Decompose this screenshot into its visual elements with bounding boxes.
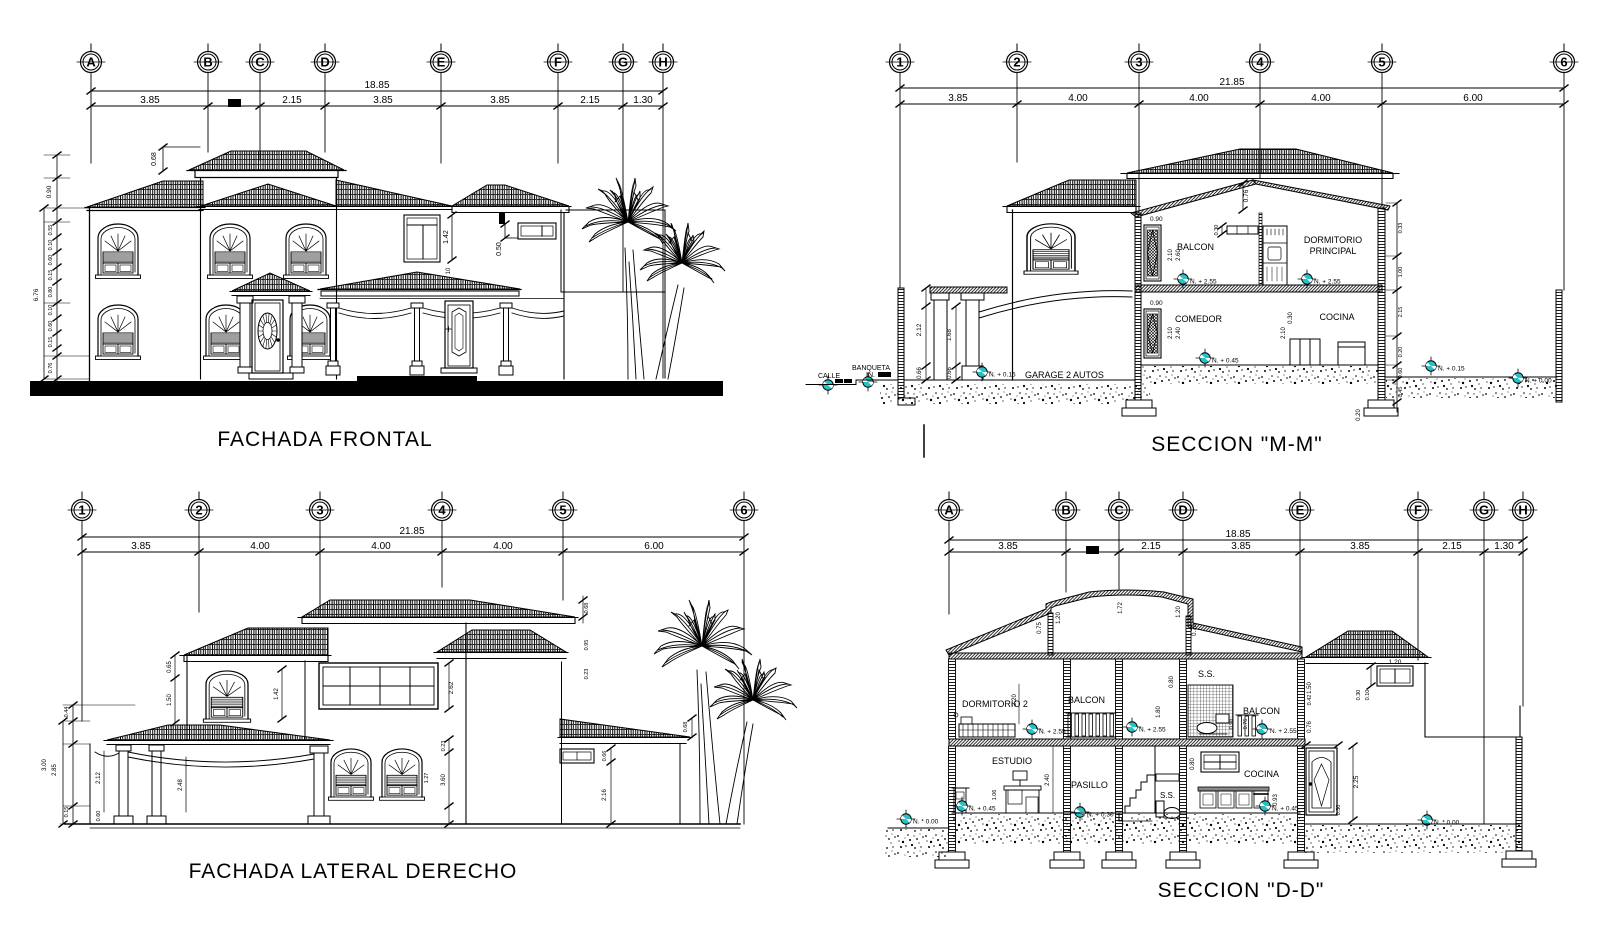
svg-text:0.68: 0.68 (584, 603, 590, 614)
svg-text:3.85: 3.85 (998, 541, 1018, 552)
svg-text:D: D (1178, 503, 1187, 518)
svg-text:N. + 0.45: N. + 0.45 (1272, 806, 1299, 813)
svg-text:B: B (203, 55, 212, 70)
svg-text:1.80: 1.80 (1156, 706, 1162, 718)
svg-text:N. + 0.45: N. + 0.45 (969, 806, 996, 813)
svg-text:0.95: 0.95 (584, 640, 590, 651)
svg-text:1.00: 1.00 (1398, 267, 1404, 278)
svg-text:2.10: 2.10 (1168, 327, 1174, 339)
svg-text:COCINA: COCINA (1244, 769, 1279, 779)
svg-text:4.00: 4.00 (371, 541, 391, 552)
svg-text:F: F (1414, 503, 1422, 518)
svg-text:3.85: 3.85 (1231, 541, 1251, 552)
svg-text:C: C (255, 55, 265, 70)
svg-text:0.15: 0.15 (48, 337, 54, 348)
svg-text:1: 1 (78, 503, 85, 518)
svg-text:N. + 2.55: N. + 2.55 (1139, 727, 1166, 734)
svg-text:N. + 0.00: N. + 0.00 (1525, 378, 1552, 385)
svg-text:0.80: 0.80 (1169, 676, 1175, 688)
svg-text:1.20: 1.20 (1056, 612, 1062, 624)
svg-text:1.20: 1.20 (1389, 659, 1402, 666)
svg-text:BANQUETA: BANQUETA (852, 365, 890, 372)
svg-text:0.65: 0.65 (167, 661, 173, 673)
svg-text:0.90: 0.90 (1150, 300, 1163, 307)
svg-text:2.25: 2.25 (1353, 775, 1360, 788)
svg-text:3.00: 3.00 (42, 759, 48, 771)
svg-text:F: F (554, 55, 562, 70)
svg-text:0.90: 0.90 (1150, 216, 1163, 223)
svg-text:10: 10 (446, 267, 452, 274)
svg-text:0.30: 0.30 (1356, 690, 1362, 701)
svg-text:2.12: 2.12 (916, 323, 923, 336)
svg-text:0.42: 0.42 (1307, 695, 1313, 706)
svg-text:N. + 2.55: N. + 2.55 (1314, 279, 1341, 286)
svg-text:3.85: 3.85 (131, 541, 151, 552)
svg-text:1.72: 1.72 (1118, 602, 1124, 614)
svg-text:A: A (944, 503, 954, 518)
svg-text:H: H (658, 55, 667, 70)
svg-text:6.00: 6.00 (644, 541, 664, 552)
svg-text:BALCON: BALCON (1068, 695, 1105, 705)
svg-text:0.75: 0.75 (1037, 622, 1043, 634)
svg-text:N. + 2.55: N. + 2.55 (1039, 729, 1066, 736)
svg-text:PASILLO: PASILLO (1071, 780, 1108, 790)
svg-text:DORMITORIO: DORMITORIO (1304, 235, 1362, 245)
svg-text:N. + 0.15: N. + 0.15 (1438, 366, 1465, 373)
svg-text:18.85: 18.85 (364, 80, 389, 91)
svg-text:0.66: 0.66 (947, 367, 953, 379)
svg-text:3.85: 3.85 (1350, 541, 1370, 552)
svg-text:0.30: 0.30 (1214, 225, 1220, 236)
svg-text:2.60: 2.60 (1176, 249, 1182, 261)
svg-text:0.33: 0.33 (1398, 223, 1404, 234)
svg-text:21.85: 21.85 (399, 526, 424, 537)
svg-text:3.85: 3.85 (373, 95, 393, 106)
svg-text:5: 5 (559, 503, 566, 518)
svg-text:0.80: 0.80 (1190, 758, 1196, 770)
svg-text:0.10: 0.10 (1365, 690, 1371, 701)
svg-text:0.44: 0.44 (64, 707, 70, 718)
svg-text:1.30: 1.30 (1494, 541, 1514, 552)
svg-text:0.60: 0.60 (96, 811, 102, 822)
svg-text:4.00: 4.00 (1068, 93, 1088, 104)
svg-text:0.76: 0.76 (1243, 189, 1250, 202)
svg-text:B: B (1061, 503, 1070, 518)
svg-text:1.42: 1.42 (443, 230, 450, 244)
svg-text:5: 5 (1378, 55, 1385, 70)
svg-text:COCINA: COCINA (1319, 312, 1354, 322)
svg-text:3.60: 3.60 (441, 774, 447, 786)
svg-text:0.80: 0.80 (48, 287, 54, 298)
svg-text:N. + 2.55: N. + 2.55 (1270, 728, 1297, 735)
svg-text:6: 6 (740, 503, 747, 518)
svg-text:3.85: 3.85 (490, 95, 510, 106)
svg-text:0.15: 0.15 (64, 807, 70, 818)
svg-text:6: 6 (1560, 55, 1567, 70)
svg-text:1.68: 1.68 (947, 329, 953, 341)
svg-text:4: 4 (438, 503, 446, 518)
svg-text:1.42: 1.42 (274, 688, 280, 700)
svg-text:3: 3 (1135, 55, 1142, 70)
svg-text:0.30: 0.30 (1336, 805, 1342, 816)
svg-text:4.00: 4.00 (1189, 93, 1209, 104)
svg-text:2.40: 2.40 (1176, 327, 1182, 339)
svg-text:0.66: 0.66 (602, 751, 608, 762)
svg-text:2.15: 2.15 (1141, 541, 1161, 552)
svg-text:CALLE: CALLE (818, 373, 841, 380)
svg-text:21.85: 21.85 (1219, 77, 1244, 88)
svg-text:S.S.: S.S. (1160, 791, 1175, 800)
svg-text:PRINCIPAL: PRINCIPAL (1310, 246, 1357, 256)
svg-text:0.68: 0.68 (151, 152, 158, 166)
svg-text:BALCON: BALCON (1177, 242, 1214, 252)
svg-text:A: A (86, 55, 96, 70)
svg-text:2.15: 2.15 (282, 95, 302, 106)
svg-text:SECCION "M-M": SECCION "M-M" (1151, 433, 1322, 456)
svg-text:0.23: 0.23 (584, 669, 590, 680)
svg-text:N. + 2.55: N. + 2.55 (1190, 279, 1217, 286)
svg-text:H: H (1518, 503, 1527, 518)
svg-text:0.93: 0.93 (1273, 794, 1279, 806)
svg-text:1.20: 1.20 (1176, 606, 1182, 618)
svg-text:1.50: 1.50 (1307, 682, 1313, 694)
svg-text:D: D (320, 55, 329, 70)
svg-text:2.48: 2.48 (178, 779, 184, 791)
svg-text:2: 2 (1013, 55, 1020, 70)
svg-text:2.12: 2.12 (96, 772, 102, 784)
svg-text:1.27: 1.27 (424, 773, 430, 784)
svg-text:2.16: 2.16 (602, 789, 608, 801)
svg-text:1.50: 1.50 (167, 694, 173, 706)
svg-text:1.30: 1.30 (633, 95, 653, 106)
svg-text:2: 2 (195, 503, 202, 518)
svg-text:0.23: 0.23 (441, 741, 447, 752)
svg-text:GARAGE 2 AUTOS: GARAGE 2 AUTOS (1025, 370, 1104, 380)
svg-text:0.30: 0.30 (1288, 312, 1294, 324)
svg-text:0.15: 0.15 (48, 270, 54, 281)
svg-text:2.15: 2.15 (580, 95, 600, 106)
svg-text:3.85: 3.85 (948, 93, 968, 104)
svg-text:0.10: 0.10 (48, 305, 54, 316)
svg-text:0.76: 0.76 (1243, 719, 1249, 730)
svg-text:1.06: 1.06 (992, 790, 998, 801)
svg-text:2.62: 2.62 (448, 681, 455, 694)
svg-text:0.60: 0.60 (48, 321, 54, 332)
svg-text:N. + 0.15: N. + 0.15 (989, 372, 1016, 379)
svg-text:0.50: 0.50 (496, 242, 503, 256)
svg-text:2.85: 2.85 (52, 764, 58, 776)
svg-text:0.10: 0.10 (48, 240, 54, 251)
svg-text:0.60: 0.60 (48, 255, 54, 266)
svg-text:G: G (618, 55, 628, 70)
svg-text:S.S.: S.S. (1198, 669, 1215, 679)
svg-text:2.10: 2.10 (1168, 249, 1174, 261)
svg-text:N. * 0.00: N. * 0.00 (913, 819, 939, 826)
svg-text:0.20: 0.20 (1356, 409, 1362, 421)
svg-text:2.20: 2.20 (1012, 694, 1018, 706)
svg-text:SECCION "D-D": SECCION "D-D" (1158, 879, 1325, 902)
svg-text:3.85: 3.85 (140, 95, 160, 106)
svg-text:E: E (1296, 503, 1305, 518)
svg-text:6.00: 6.00 (1463, 93, 1483, 104)
svg-text:6.76: 6.76 (33, 288, 40, 301)
svg-text:18.85: 18.85 (1225, 529, 1250, 540)
svg-text:1: 1 (896, 55, 903, 70)
svg-text:3: 3 (316, 503, 323, 518)
svg-text:0.90: 0.90 (1229, 719, 1235, 730)
svg-text:FACHADA LATERAL DERECHO: FACHADA LATERAL DERECHO (189, 860, 518, 883)
svg-text:FACHADA FRONTAL: FACHADA FRONTAL (217, 428, 432, 451)
svg-text:0.68: 0.68 (683, 722, 689, 733)
svg-text:0.20: 0.20 (1398, 347, 1404, 358)
svg-text:2.15: 2.15 (1442, 541, 1462, 552)
svg-text:0.90: 0.90 (46, 185, 53, 198)
svg-text:COMEDOR: COMEDOR (1175, 314, 1223, 324)
svg-text:0.55: 0.55 (48, 225, 54, 236)
svg-text:2.10: 2.10 (1281, 327, 1287, 339)
svg-text:2.15: 2.15 (1398, 307, 1404, 318)
svg-text:0.66: 0.66 (917, 367, 923, 379)
svg-text:ESTUDIO: ESTUDIO (992, 756, 1032, 766)
svg-text:0.75: 0.75 (1192, 624, 1198, 636)
svg-text:4: 4 (1256, 55, 1264, 70)
svg-text:0.76: 0.76 (48, 363, 54, 374)
svg-text:C: C (1114, 503, 1124, 518)
svg-text:0.76: 0.76 (1307, 721, 1313, 733)
svg-text:4.00: 4.00 (250, 541, 270, 552)
svg-text:2.40: 2.40 (1045, 774, 1051, 786)
svg-text:E: E (437, 55, 446, 70)
svg-text:G: G (1479, 503, 1489, 518)
svg-text:N. + 0.45: N. + 0.45 (1212, 358, 1239, 365)
svg-text:4.00: 4.00 (1311, 93, 1331, 104)
svg-text:4.00: 4.00 (493, 541, 513, 552)
